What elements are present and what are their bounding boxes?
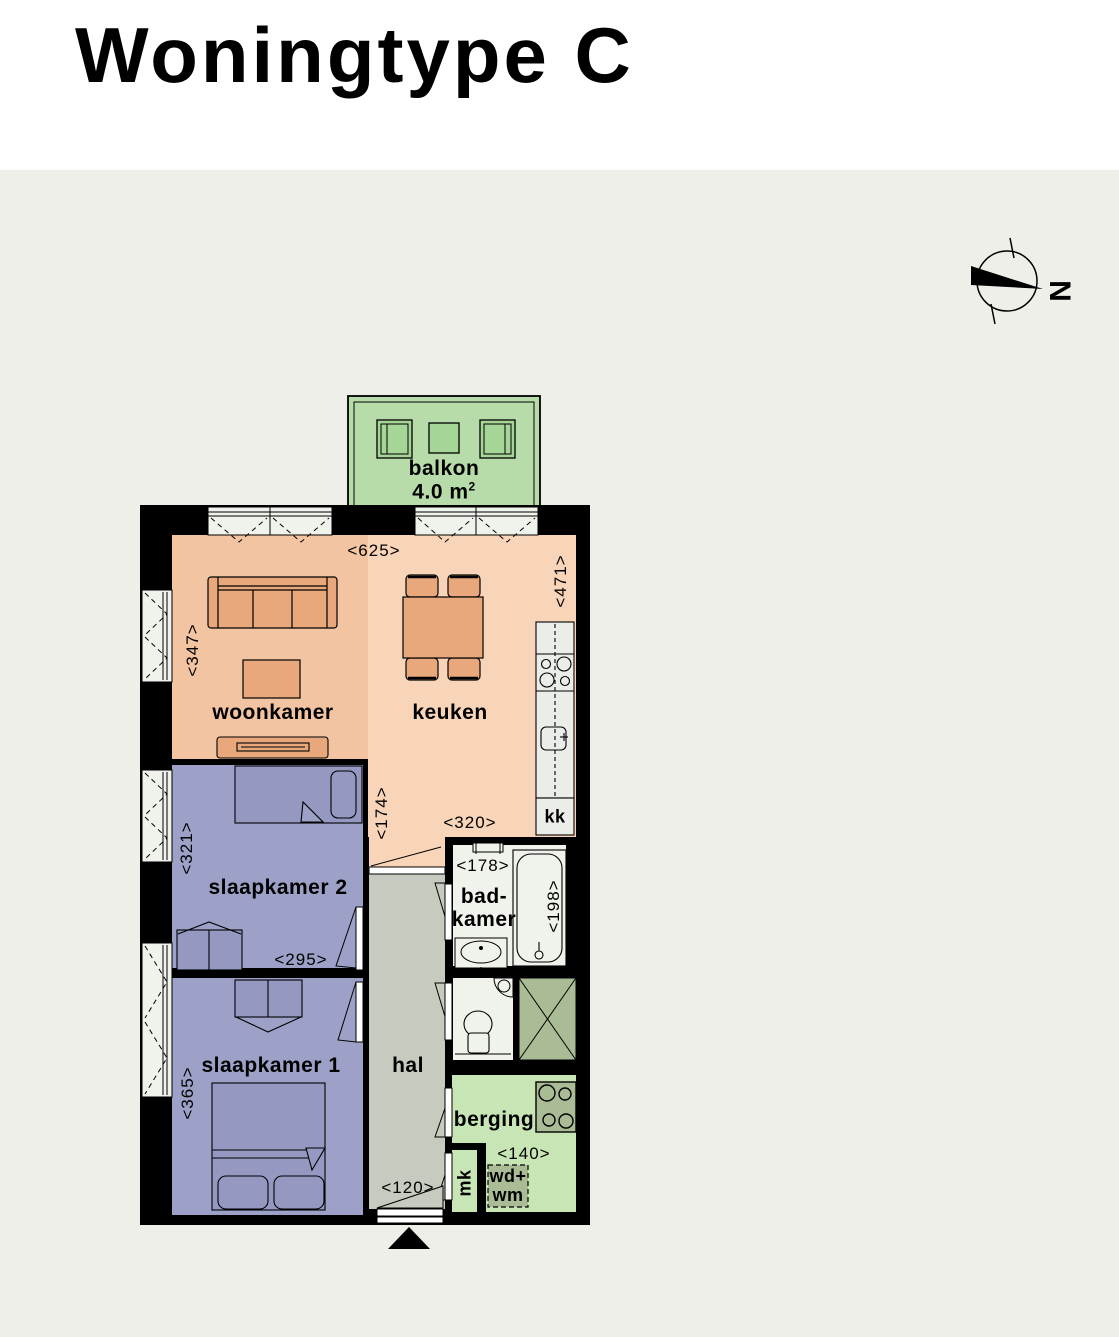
pillow-icon (274, 1176, 324, 1209)
double-bed-icon (212, 1083, 325, 1210)
coffee-table-icon (243, 660, 300, 698)
dim-badkamer-width: <178> (456, 856, 509, 876)
window-icon (142, 590, 172, 1097)
compass-icon (971, 238, 1043, 324)
dim-slaapkamer2-depth: <321> (177, 821, 197, 874)
planter-icon (377, 420, 412, 458)
heating-unit-icon (536, 1082, 576, 1132)
entrance-arrow-icon (388, 1227, 430, 1249)
page: Woningtype C (0, 0, 1119, 1337)
washbasin-icon (455, 938, 507, 973)
radiator-icon (473, 841, 503, 854)
floor-plan (0, 0, 1119, 1337)
dim-hal-width: <120> (381, 1178, 434, 1198)
planter-icon (480, 420, 515, 458)
tv-cabinet-icon (217, 737, 328, 758)
north-label: N (1042, 280, 1076, 302)
washer-dryer-label: wd+ wm (489, 1167, 526, 1205)
dim-keuken-passage: <174> (372, 786, 392, 839)
pillow-icon (218, 1176, 268, 1209)
room-label-badkamer: bad- kamer (452, 885, 516, 931)
dim-badkamer-depth: <198> (544, 879, 564, 932)
meter-cupboard-label: mk (455, 1169, 476, 1196)
kitchen-counter-icon (536, 622, 574, 835)
room-label-keuken: keuken (412, 701, 487, 725)
room-label-hal: hal (392, 1054, 424, 1078)
balcony-label: balkon (409, 457, 480, 481)
dim-slaapkamer2-width: <295> (274, 950, 327, 970)
room-label-woonkamer: woonkamer (212, 701, 333, 725)
room-label-slaapkamer2: slaapkamer 2 (208, 876, 347, 900)
bed-icon (235, 766, 362, 823)
room-hal-area (369, 874, 445, 1209)
dim-keuken-depth: <471> (551, 554, 571, 607)
shaft-area (519, 978, 576, 1060)
dim-woonkamer-depth: <347> (183, 623, 203, 676)
room-label-berging: berging (454, 1108, 535, 1132)
dim-keuken-width: <320> (443, 813, 496, 833)
fridge-label: kk (544, 807, 565, 828)
planter-icon (429, 423, 459, 453)
room-label-slaapkamer1: slaapkamer 1 (201, 1054, 340, 1078)
compass-needle-icon (971, 266, 1043, 289)
dim-berging-width: <140> (497, 1144, 550, 1164)
dim-slaapkamer1-depth: <365> (178, 1066, 198, 1119)
dim-total-width: <625> (347, 541, 400, 561)
balcony-area-value: 4.0 m2 (412, 480, 475, 505)
sofa-icon (208, 577, 337, 628)
